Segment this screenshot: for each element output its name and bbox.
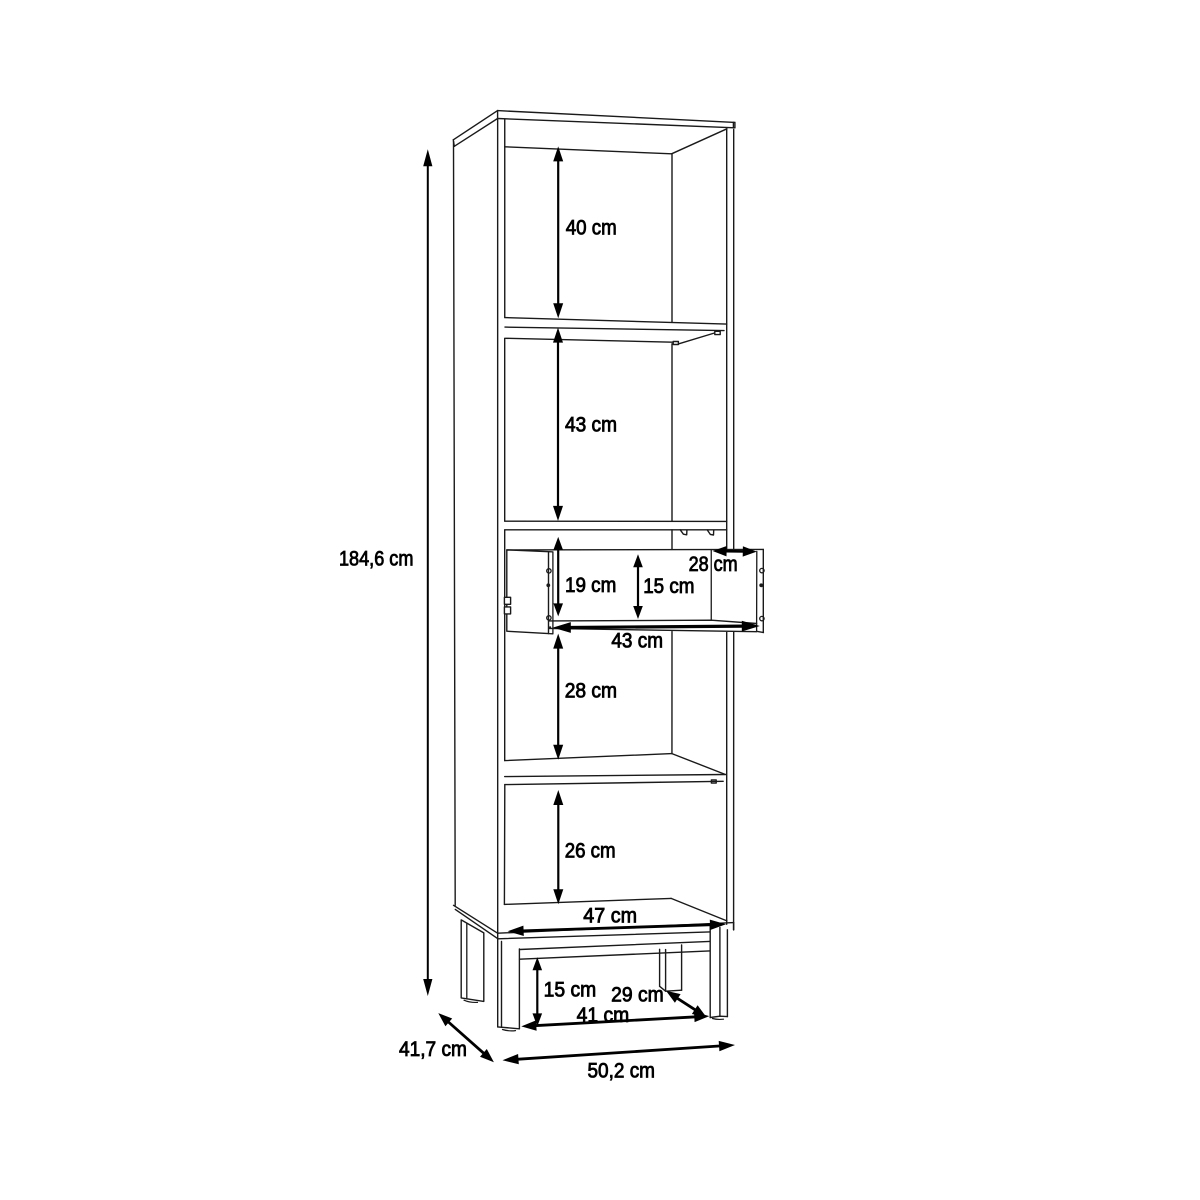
svg-text:41,7 cm: 41,7 cm bbox=[399, 1038, 467, 1061]
svg-text:50,2 cm: 50,2 cm bbox=[588, 1060, 656, 1083]
svg-text:47 cm: 47 cm bbox=[583, 905, 637, 928]
svg-text:43 cm: 43 cm bbox=[565, 414, 617, 437]
svg-text:26 cm: 26 cm bbox=[565, 840, 616, 863]
svg-text:40 cm: 40 cm bbox=[566, 217, 617, 240]
svg-text:43 cm: 43 cm bbox=[611, 630, 663, 653]
svg-text:41 cm: 41 cm bbox=[577, 1004, 630, 1027]
svg-text:28 cm: 28 cm bbox=[565, 680, 617, 703]
svg-text:15 cm: 15 cm bbox=[544, 979, 597, 1002]
svg-text:28 cm: 28 cm bbox=[689, 553, 738, 576]
svg-text:19 cm: 19 cm bbox=[565, 574, 616, 597]
svg-text:184,6 cm: 184,6 cm bbox=[339, 548, 413, 571]
svg-text:15 cm: 15 cm bbox=[643, 575, 694, 598]
